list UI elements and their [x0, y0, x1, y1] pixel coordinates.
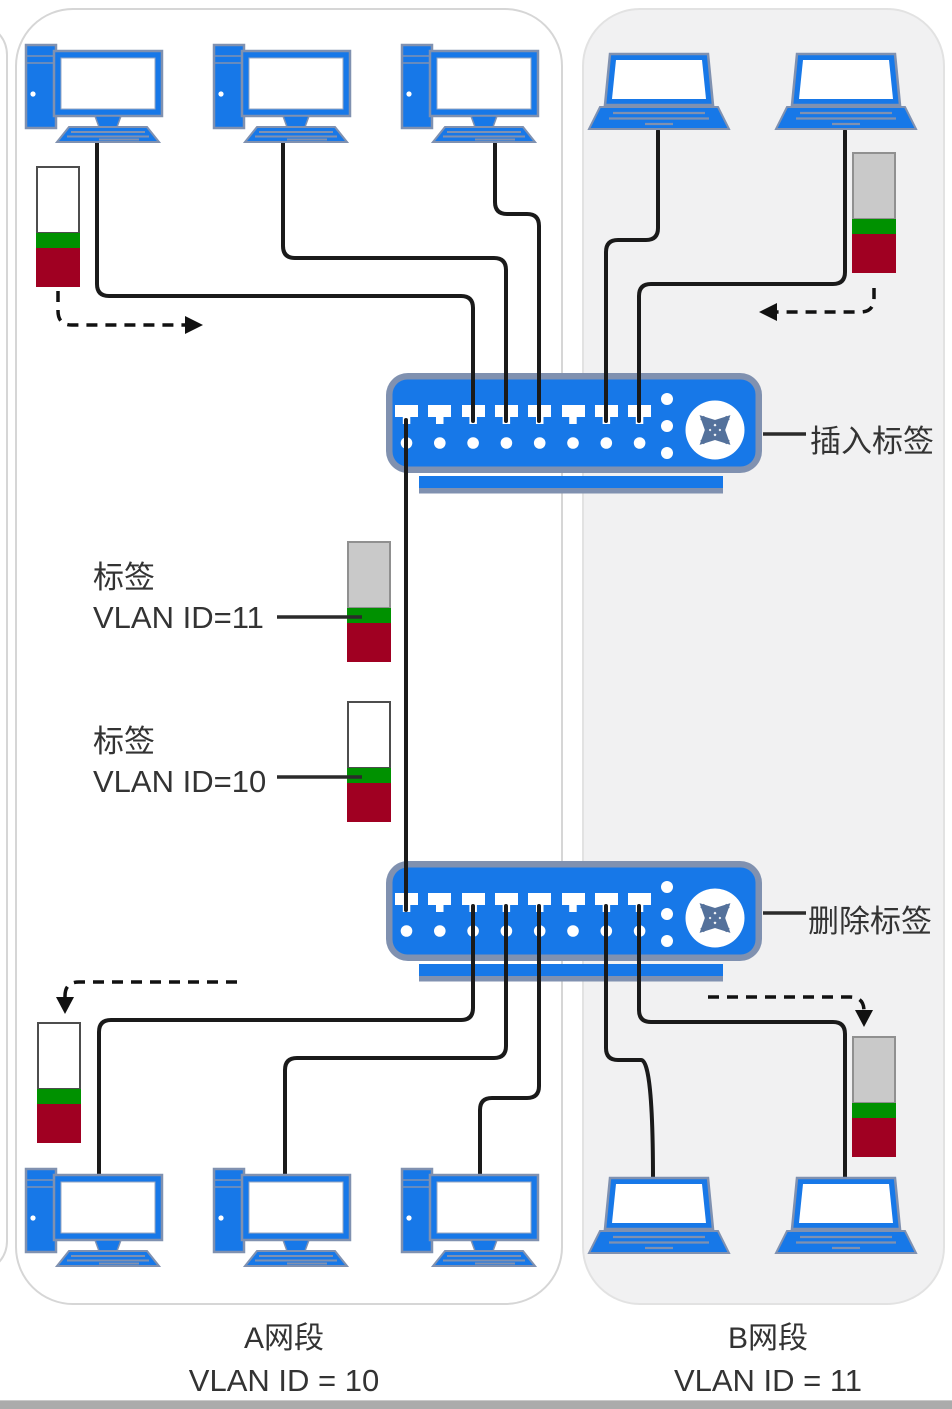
insert-tag-label: 插入标签: [810, 416, 934, 461]
vlan10-frame-tag-icon: [37, 1023, 81, 1143]
vlan11-frame-tag-icon: [347, 542, 391, 662]
laptop-icon: [776, 54, 916, 129]
vlan11-tag-callout: 标签 VLAN ID=11: [93, 558, 264, 638]
desktop-computer-icon: [26, 45, 162, 142]
laptop-icon: [589, 54, 729, 129]
switch-remove-tag: [386, 861, 762, 982]
segment-b-vlan: VLAN ID = 11: [674, 1363, 862, 1399]
segment-a-vlan: VLAN ID = 10: [189, 1363, 379, 1399]
vlan11-frame-tag-icon: [852, 1037, 896, 1157]
vlan11-frame-tag-icon: [852, 153, 896, 273]
leader-lines: [277, 434, 806, 913]
segment-a-title: A网段: [244, 1313, 324, 1357]
vlan11-callout-line1: 标签: [93, 558, 264, 598]
vlan10-frame-tag-icon: [347, 702, 391, 822]
desktop-computer-icon: [214, 1169, 350, 1266]
ethernet-cables: [97, 131, 845, 1180]
vlan10-tag-callout: 标签 VLAN ID=10: [93, 722, 266, 802]
desktop-computer-icon: [26, 1169, 162, 1266]
laptop-icon: [776, 1178, 916, 1253]
laptop-icon: [589, 1178, 729, 1253]
segment-b-title: B网段: [728, 1313, 808, 1357]
vlan10-frame-tag-icon: [36, 167, 80, 287]
vlan-diagram: 插入标签 删除标签 标签 VLAN ID=11 标签 VLAN ID=10 A网…: [0, 0, 952, 1409]
desktop-computer-icon: [214, 45, 350, 142]
vlan10-callout-line1: 标签: [93, 722, 266, 762]
switch-insert-tag: [386, 373, 762, 494]
remove-tag-label: 删除标签: [808, 896, 932, 941]
desktop-computer-icon: [402, 45, 538, 142]
horizontal-scrollbar[interactable]: [0, 1400, 952, 1409]
diagram-canvas: [0, 0, 952, 1409]
desktop-computer-icon: [402, 1169, 538, 1266]
vlan10-callout-line2: VLAN ID=10: [93, 762, 266, 802]
vlan11-callout-line2: VLAN ID=11: [93, 598, 264, 638]
